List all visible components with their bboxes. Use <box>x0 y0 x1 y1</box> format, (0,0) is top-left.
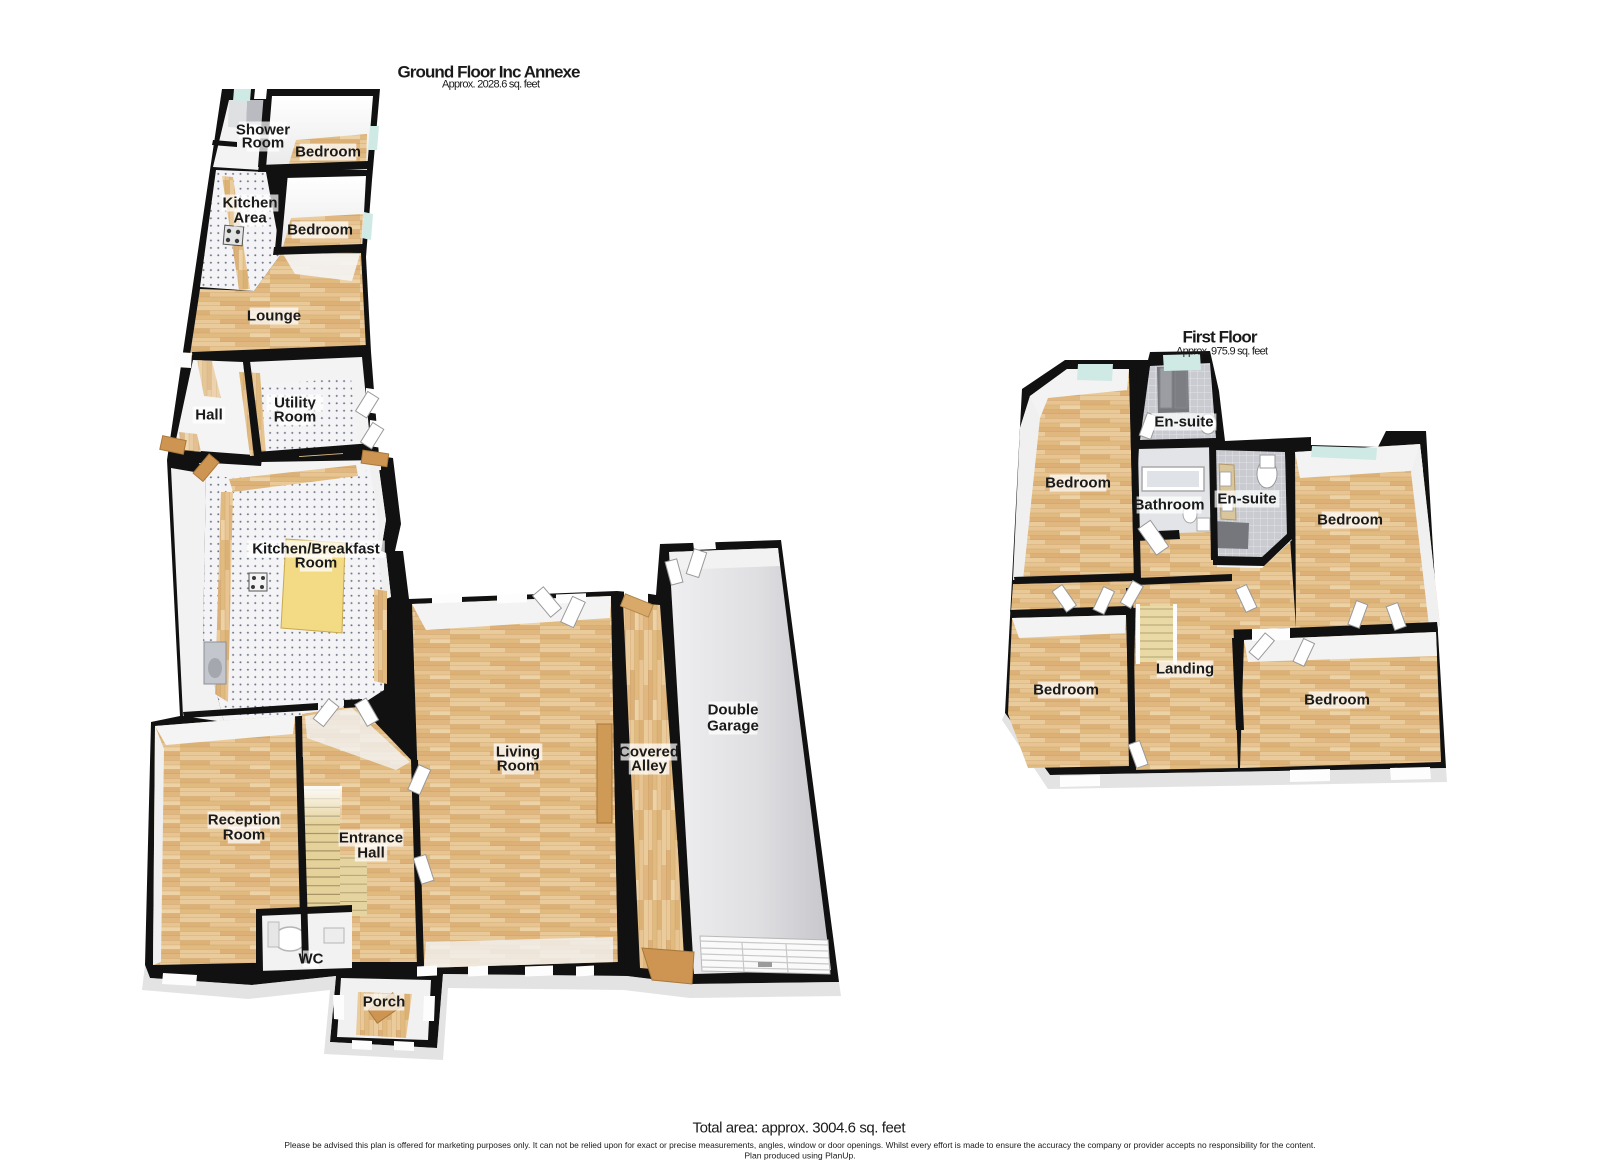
svg-text:Alley: Alley <box>631 758 668 775</box>
svg-text:Area: Area <box>233 210 267 227</box>
svg-text:En-suite: En-suite <box>1217 491 1276 508</box>
svg-text:Room: Room <box>242 135 285 152</box>
svg-text:Room: Room <box>497 758 540 775</box>
svg-text:Approx. 2028.6 sq. feet: Approx. 2028.6 sq. feet <box>442 79 540 91</box>
svg-text:Room: Room <box>295 555 338 572</box>
svg-text:Room: Room <box>223 827 266 844</box>
svg-text:Double: Double <box>708 702 759 719</box>
svg-text:Porch: Porch <box>363 994 406 1011</box>
svg-text:Garage: Garage <box>707 718 759 735</box>
svg-text:Bedroom: Bedroom <box>1045 475 1111 492</box>
svg-text:Bedroom: Bedroom <box>295 144 361 161</box>
svg-text:Bedroom: Bedroom <box>287 222 353 239</box>
svg-text:WC: WC <box>299 951 324 968</box>
svg-text:Landing: Landing <box>1156 661 1214 678</box>
svg-text:First Floor: First Floor <box>1183 328 1258 347</box>
svg-text:Bedroom: Bedroom <box>1317 512 1383 529</box>
svg-text:Approx. 975.9 sq. feet: Approx. 975.9 sq. feet <box>1176 346 1268 358</box>
svg-text:Hall: Hall <box>357 845 385 862</box>
svg-text:Bedroom: Bedroom <box>1033 682 1099 699</box>
svg-text:Lounge: Lounge <box>247 308 301 325</box>
svg-text:En-suite: En-suite <box>1154 414 1213 431</box>
svg-text:Total area: approx. 3004.6 sq.: Total area: approx. 3004.6 sq. feet <box>693 1120 907 1137</box>
svg-text:Bathroom: Bathroom <box>1134 497 1205 514</box>
svg-text:Bedroom: Bedroom <box>1304 692 1370 709</box>
svg-text:Please be advised this plan is: Please be advised this plan is offered f… <box>284 1140 1315 1150</box>
svg-text:Hall: Hall <box>195 407 223 424</box>
svg-text:Plan produced using PlanUp.: Plan produced using PlanUp. <box>744 1151 855 1161</box>
svg-text:Room: Room <box>274 409 317 426</box>
